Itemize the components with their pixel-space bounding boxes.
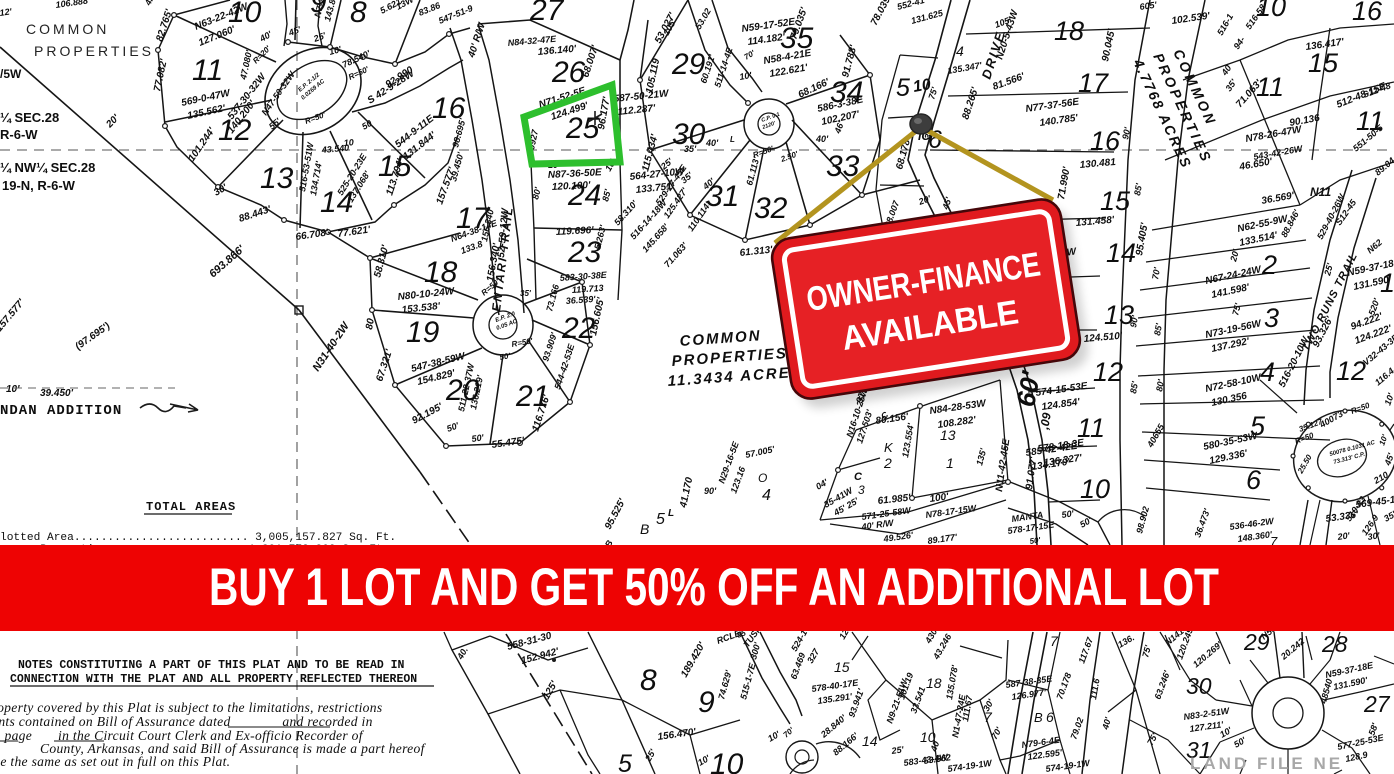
svg-text:PROPERTIES: PROPERTIES	[34, 43, 154, 59]
svg-text:B: B	[1034, 710, 1043, 725]
svg-text:13: 13	[940, 427, 956, 443]
svg-text:35': 35'	[520, 289, 532, 298]
svg-text:50': 50'	[471, 432, 485, 444]
svg-text:30: 30	[1186, 673, 1212, 699]
svg-text:36.539': 36.539'	[565, 294, 596, 306]
svg-text:¼ SEC.28: ¼ SEC.28	[0, 110, 59, 125]
svg-text:11: 11	[192, 54, 223, 87]
svg-text:NDAN ADDITION: NDAN ADDITION	[0, 403, 122, 419]
svg-text:14: 14	[862, 733, 878, 749]
svg-text:3: 3	[858, 483, 865, 497]
svg-text:120.100': 120.100'	[552, 180, 592, 193]
svg-text:12: 12	[1093, 357, 1123, 387]
svg-text:18: 18	[424, 256, 458, 289]
svg-text:40': 40'	[705, 138, 719, 148]
svg-text:LAND FILE NE: LAND FILE NE	[1190, 754, 1343, 773]
svg-text:L: L	[730, 135, 735, 144]
svg-text:BUY 1 LOT AND GET 50% OFF AN A: BUY 1 LOT AND GET 50% OFF AN ADDITIONAL …	[209, 558, 1219, 617]
svg-text:TOTAL AREAS: TOTAL AREAS	[146, 500, 236, 514]
svg-text:32: 32	[754, 192, 788, 225]
svg-text:13: 13	[260, 162, 294, 195]
svg-text:3: 3	[1264, 303, 1279, 333]
svg-text:16: 16	[1352, 0, 1383, 26]
svg-text:12: 12	[1336, 356, 1366, 386]
svg-text:NOTES CONSTITUTING A PART OF T: NOTES CONSTITUTING A PART OF THIS PLAT A…	[18, 659, 405, 672]
svg-text:19: 19	[406, 316, 440, 349]
svg-text:8: 8	[350, 0, 367, 29]
svg-text:L: L	[668, 508, 674, 519]
svg-text:19-N, R-6-W: 19-N, R-6-W	[2, 178, 76, 193]
svg-text:/5W: /5W	[0, 67, 22, 81]
svg-text:15: 15	[1100, 186, 1131, 216]
svg-text:9: 9	[698, 686, 715, 719]
svg-text:CONNECTION WITH THE PLAT AND A: CONNECTION WITH THE PLAT AND ALL PROPERT…	[10, 673, 417, 686]
svg-text:15: 15	[1308, 48, 1339, 78]
svg-text:90': 90'	[704, 486, 717, 496]
svg-text:C: C	[854, 471, 863, 483]
svg-text:K: K	[884, 440, 894, 455]
svg-text:27: 27	[529, 0, 565, 27]
svg-text:17: 17	[1078, 68, 1109, 98]
svg-text:lotted Area...................: lotted Area.......................... 3,…	[0, 532, 396, 544]
svg-text:10: 10	[1080, 474, 1110, 504]
svg-text:ce the same as set out in full: ce the same as set out in full on this P…	[0, 754, 230, 769]
svg-text:4: 4	[762, 487, 771, 504]
svg-text:16: 16	[1090, 126, 1121, 156]
svg-text:COMMON: COMMON	[26, 21, 109, 37]
svg-text:28: 28	[1321, 631, 1348, 657]
svg-text:27: 27	[1363, 691, 1391, 717]
svg-text:R-6-W: R-6-W	[0, 127, 38, 142]
svg-text:22: 22	[561, 312, 596, 345]
svg-text:25': 25'	[890, 744, 905, 756]
svg-text:5: 5	[618, 750, 632, 774]
svg-text:39.450': 39.450'	[40, 388, 74, 399]
svg-text:10': 10'	[6, 384, 20, 395]
svg-text:¼ NW¼ SEC.28: ¼ NW¼ SEC.28	[0, 160, 95, 175]
svg-text:5: 5	[896, 74, 910, 102]
svg-text:15: 15	[834, 659, 850, 675]
svg-text:1: 1	[946, 455, 954, 471]
svg-text:13: 13	[1380, 268, 1394, 298]
svg-text:8: 8	[640, 664, 657, 697]
svg-text:20': 20'	[1336, 530, 1351, 542]
svg-text:14: 14	[1106, 238, 1136, 268]
svg-text:O: O	[758, 471, 767, 485]
svg-text:10: 10	[1256, 0, 1286, 22]
svg-text:10: 10	[912, 76, 933, 96]
svg-text:roperty covered by this Plat i: roperty covered by this Plat is subject …	[0, 700, 382, 715]
svg-text:18: 18	[1054, 16, 1084, 46]
svg-text:50': 50'	[1061, 508, 1075, 520]
svg-text:18: 18	[926, 675, 942, 691]
svg-text:2: 2	[883, 455, 892, 471]
svg-text:10: 10	[343, 137, 354, 148]
svg-text:10: 10	[710, 748, 744, 774]
svg-text:B: B	[640, 521, 649, 537]
svg-text:40': 40'	[815, 134, 829, 144]
svg-text:6: 6	[1246, 465, 1262, 495]
svg-text:5: 5	[656, 511, 665, 528]
svg-text:35': 35'	[684, 144, 697, 154]
svg-text:2: 2	[1261, 250, 1277, 280]
svg-text:119.696': 119.696'	[556, 225, 595, 238]
